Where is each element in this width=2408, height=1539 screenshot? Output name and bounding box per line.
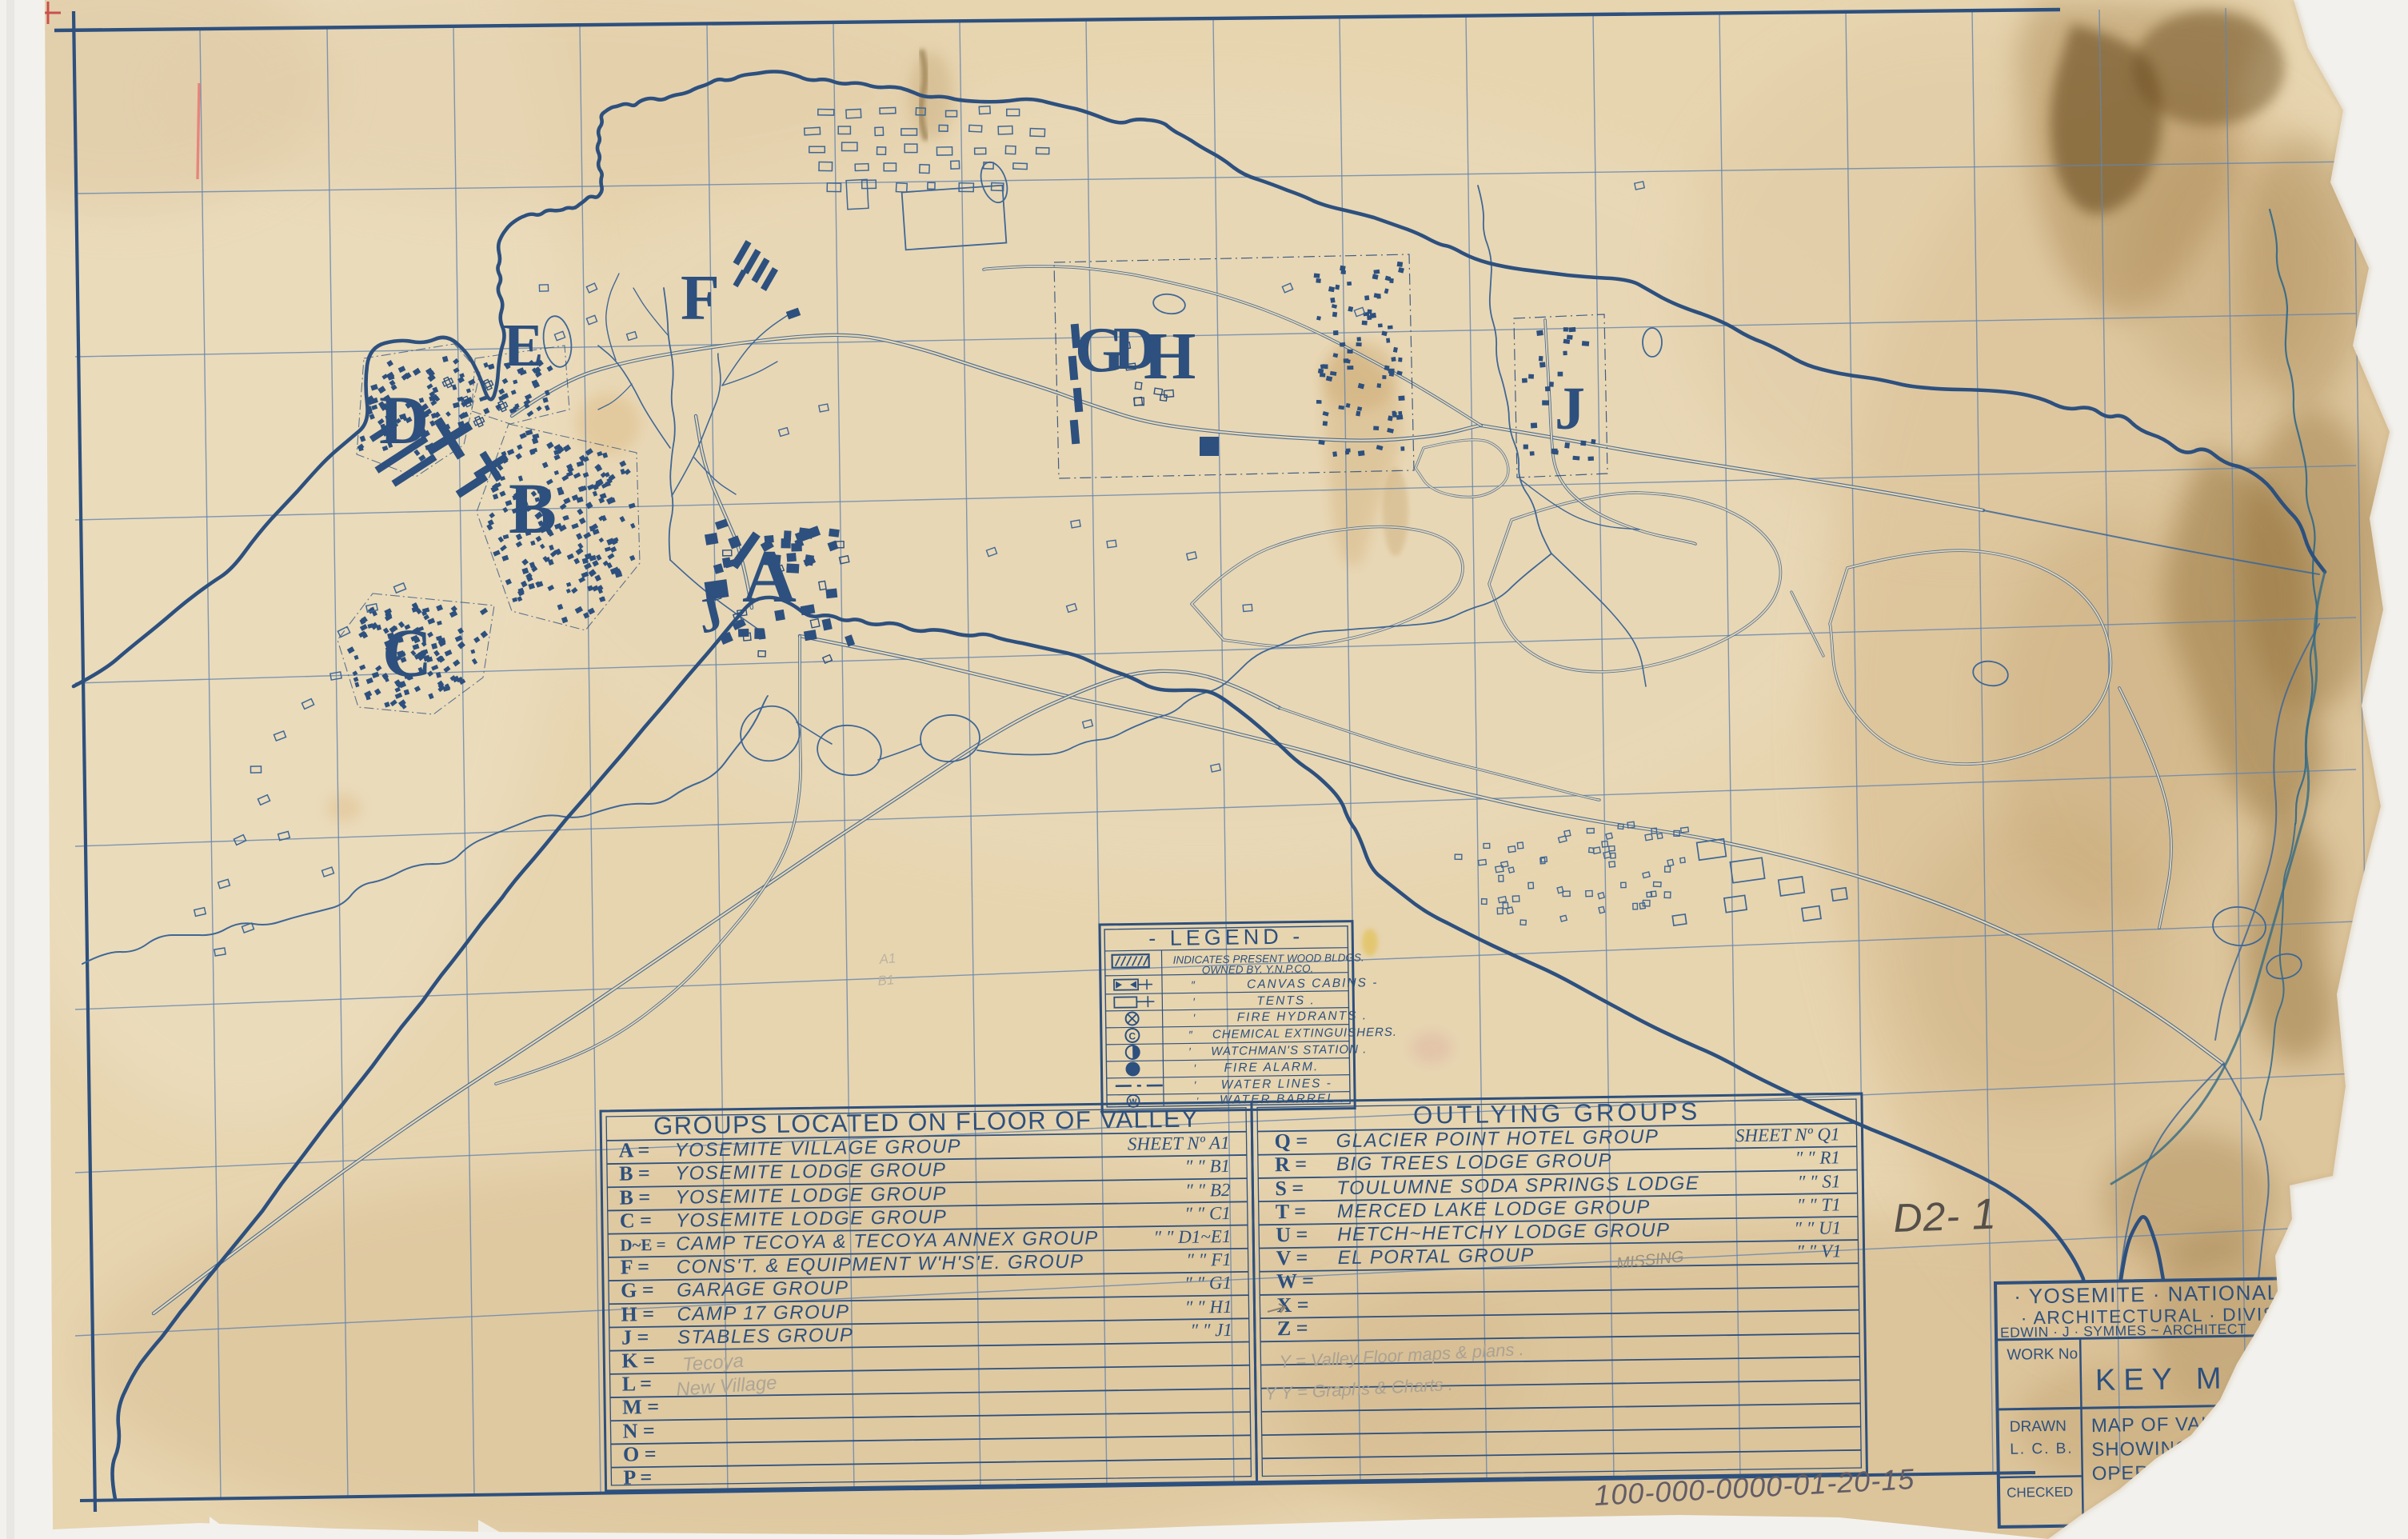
svg-text:FIRE HYDRANTS .: FIRE HYDRANTS . [1237,1009,1368,1024]
svg-text:- LEGEND -: - LEGEND - [1148,924,1304,950]
svg-text:B1: B1 [877,972,895,989]
svg-text:D: D [379,382,429,458]
svg-text:J: J [1555,375,1585,442]
svg-text:WATER BARREL .: WATER BARREL . [1220,1092,1345,1107]
svg-text:H =: H = [621,1302,654,1326]
svg-text:WATER LINES -: WATER LINES - [1221,1077,1332,1092]
svg-text:G =: G = [621,1278,654,1302]
svg-text:Tecoya: Tecoya [682,1350,745,1376]
svg-text:″ ″ D1~E1: ″ ″ D1~E1 [1153,1226,1231,1247]
svg-text:H: H [1144,319,1196,394]
svg-text:CANVAS CABINS -: CANVAS CABINS - [1247,976,1379,991]
svg-text:N =: N = [622,1419,654,1443]
svg-text:″ ″ J1: ″ ″ J1 [1190,1320,1232,1341]
svg-text:Q =: Q = [1274,1129,1308,1153]
svg-text:O =: O = [623,1442,657,1466]
svg-text:EL PORTAL GROUP: EL PORTAL GROUP [1337,1245,1534,1269]
svg-text:J =: J = [621,1325,649,1349]
svg-text:C =: C = [620,1209,652,1233]
svg-text:A1: A1 [878,950,897,967]
svg-text:″ ″ R1: ″ ″ R1 [1795,1147,1841,1168]
svg-text:D2- 1: D2- 1 [1892,1190,1998,1241]
svg-text:U =: U = [1276,1223,1308,1247]
svg-text:R =: R = [1275,1153,1307,1177]
svg-text:BIG TREES LODGE GROUP: BIG TREES LODGE GROUP [1336,1149,1612,1175]
svg-text:A: A [742,535,797,618]
svg-text:CHEMICAL EXTINGUISHERS.: CHEMICAL EXTINGUISHERS. [1212,1025,1397,1041]
svg-text:L =: L = [622,1372,653,1396]
svg-text:OUTLYING GROUPS: OUTLYING GROUPS [1413,1097,1701,1129]
svg-text:P =: P = [623,1465,652,1489]
svg-text:F =: F = [621,1255,650,1279]
svg-text:″ ″ V1: ″ ″ V1 [1796,1241,1842,1261]
svg-text:F: F [681,263,720,334]
svg-text:K =: K = [621,1349,655,1373]
svg-text:YOSEMITE LODGE GROUP: YOSEMITE LODGE GROUP [675,1159,947,1185]
svg-text:OWNED BY. Y.N.P.CO.: OWNED BY. Y.N.P.CO. [1202,962,1314,976]
svg-text:D~E =: D~E = [620,1235,666,1255]
svg-text:″ ″ T1: ″ ″ T1 [1797,1194,1841,1215]
svg-text:L. C. B.: L. C. B. [2010,1440,2074,1457]
svg-text:S =: S = [1275,1177,1304,1200]
svg-text:″ ″ G1: ″ ″ G1 [1184,1273,1232,1293]
svg-text:YOSEMITE VILLAGE GROUP: YOSEMITE VILLAGE GROUP [675,1136,962,1161]
svg-text:W =: W = [1276,1269,1314,1293]
svg-text:″ ″ S1: ″ ″ S1 [1798,1171,1841,1192]
svg-text:SHEET Nº A1: SHEET Nº A1 [1128,1133,1230,1154]
svg-text:CAMP 17 GROUP: CAMP 17 GROUP [677,1301,849,1325]
svg-text:C: C [382,614,432,691]
svg-text:V =: V = [1276,1246,1308,1270]
svg-text:″ ″ B1: ″ ″ B1 [1185,1156,1231,1177]
svg-text:YOSEMITE LODGE GROUP: YOSEMITE LODGE GROUP [676,1206,948,1232]
svg-text:FIRE ALARM.: FIRE ALARM. [1224,1060,1319,1075]
svg-text:″ ″ B2: ″ ″ B2 [1185,1180,1231,1201]
svg-text:Z =: Z = [1277,1317,1308,1341]
svg-text:E: E [503,312,544,379]
svg-text:″ ″ C1: ″ ″ C1 [1184,1203,1231,1224]
svg-text:DRAWN: DRAWN [2010,1418,2067,1436]
svg-text:MERCED LAKE LODGE GROUP: MERCED LAKE LODGE GROUP [1337,1197,1651,1222]
svg-text:A =: A = [618,1138,649,1162]
svg-text:WORK No: WORK No [2007,1345,2078,1363]
svg-text:T =: T = [1276,1200,1307,1224]
svg-text:B =: B = [619,1185,650,1209]
svg-text:C: C [1128,1030,1136,1041]
svg-text:GARAGE GROUP: GARAGE GROUP [677,1277,849,1301]
svg-text:SHEET Nº Q1: SHEET Nº Q1 [1735,1124,1840,1145]
svg-text:″ ″ F1: ″ ″ F1 [1186,1249,1232,1270]
svg-text:TENTS .: TENTS . [1256,993,1316,1008]
svg-text:GLACIER POINT HOTEL GROUP: GLACIER POINT HOTEL GROUP [1336,1126,1659,1153]
svg-text:″ ″ U1: ″ ″ U1 [1794,1217,1841,1238]
svg-text:WATCHMAN'S STATION .: WATCHMAN'S STATION . [1211,1042,1367,1058]
svg-text:CHECKED: CHECKED [2007,1485,2073,1501]
svg-text:B: B [509,470,557,549]
svg-text:STABLES GROUP: STABLES GROUP [677,1325,854,1349]
svg-text:B =: B = [619,1161,650,1185]
svg-text:M =: M = [622,1395,659,1419]
svg-text:″ ″ H1: ″ ″ H1 [1185,1297,1232,1317]
svg-text:YOSEMITE LODGE GROUP: YOSEMITE LODGE GROUP [675,1183,947,1209]
